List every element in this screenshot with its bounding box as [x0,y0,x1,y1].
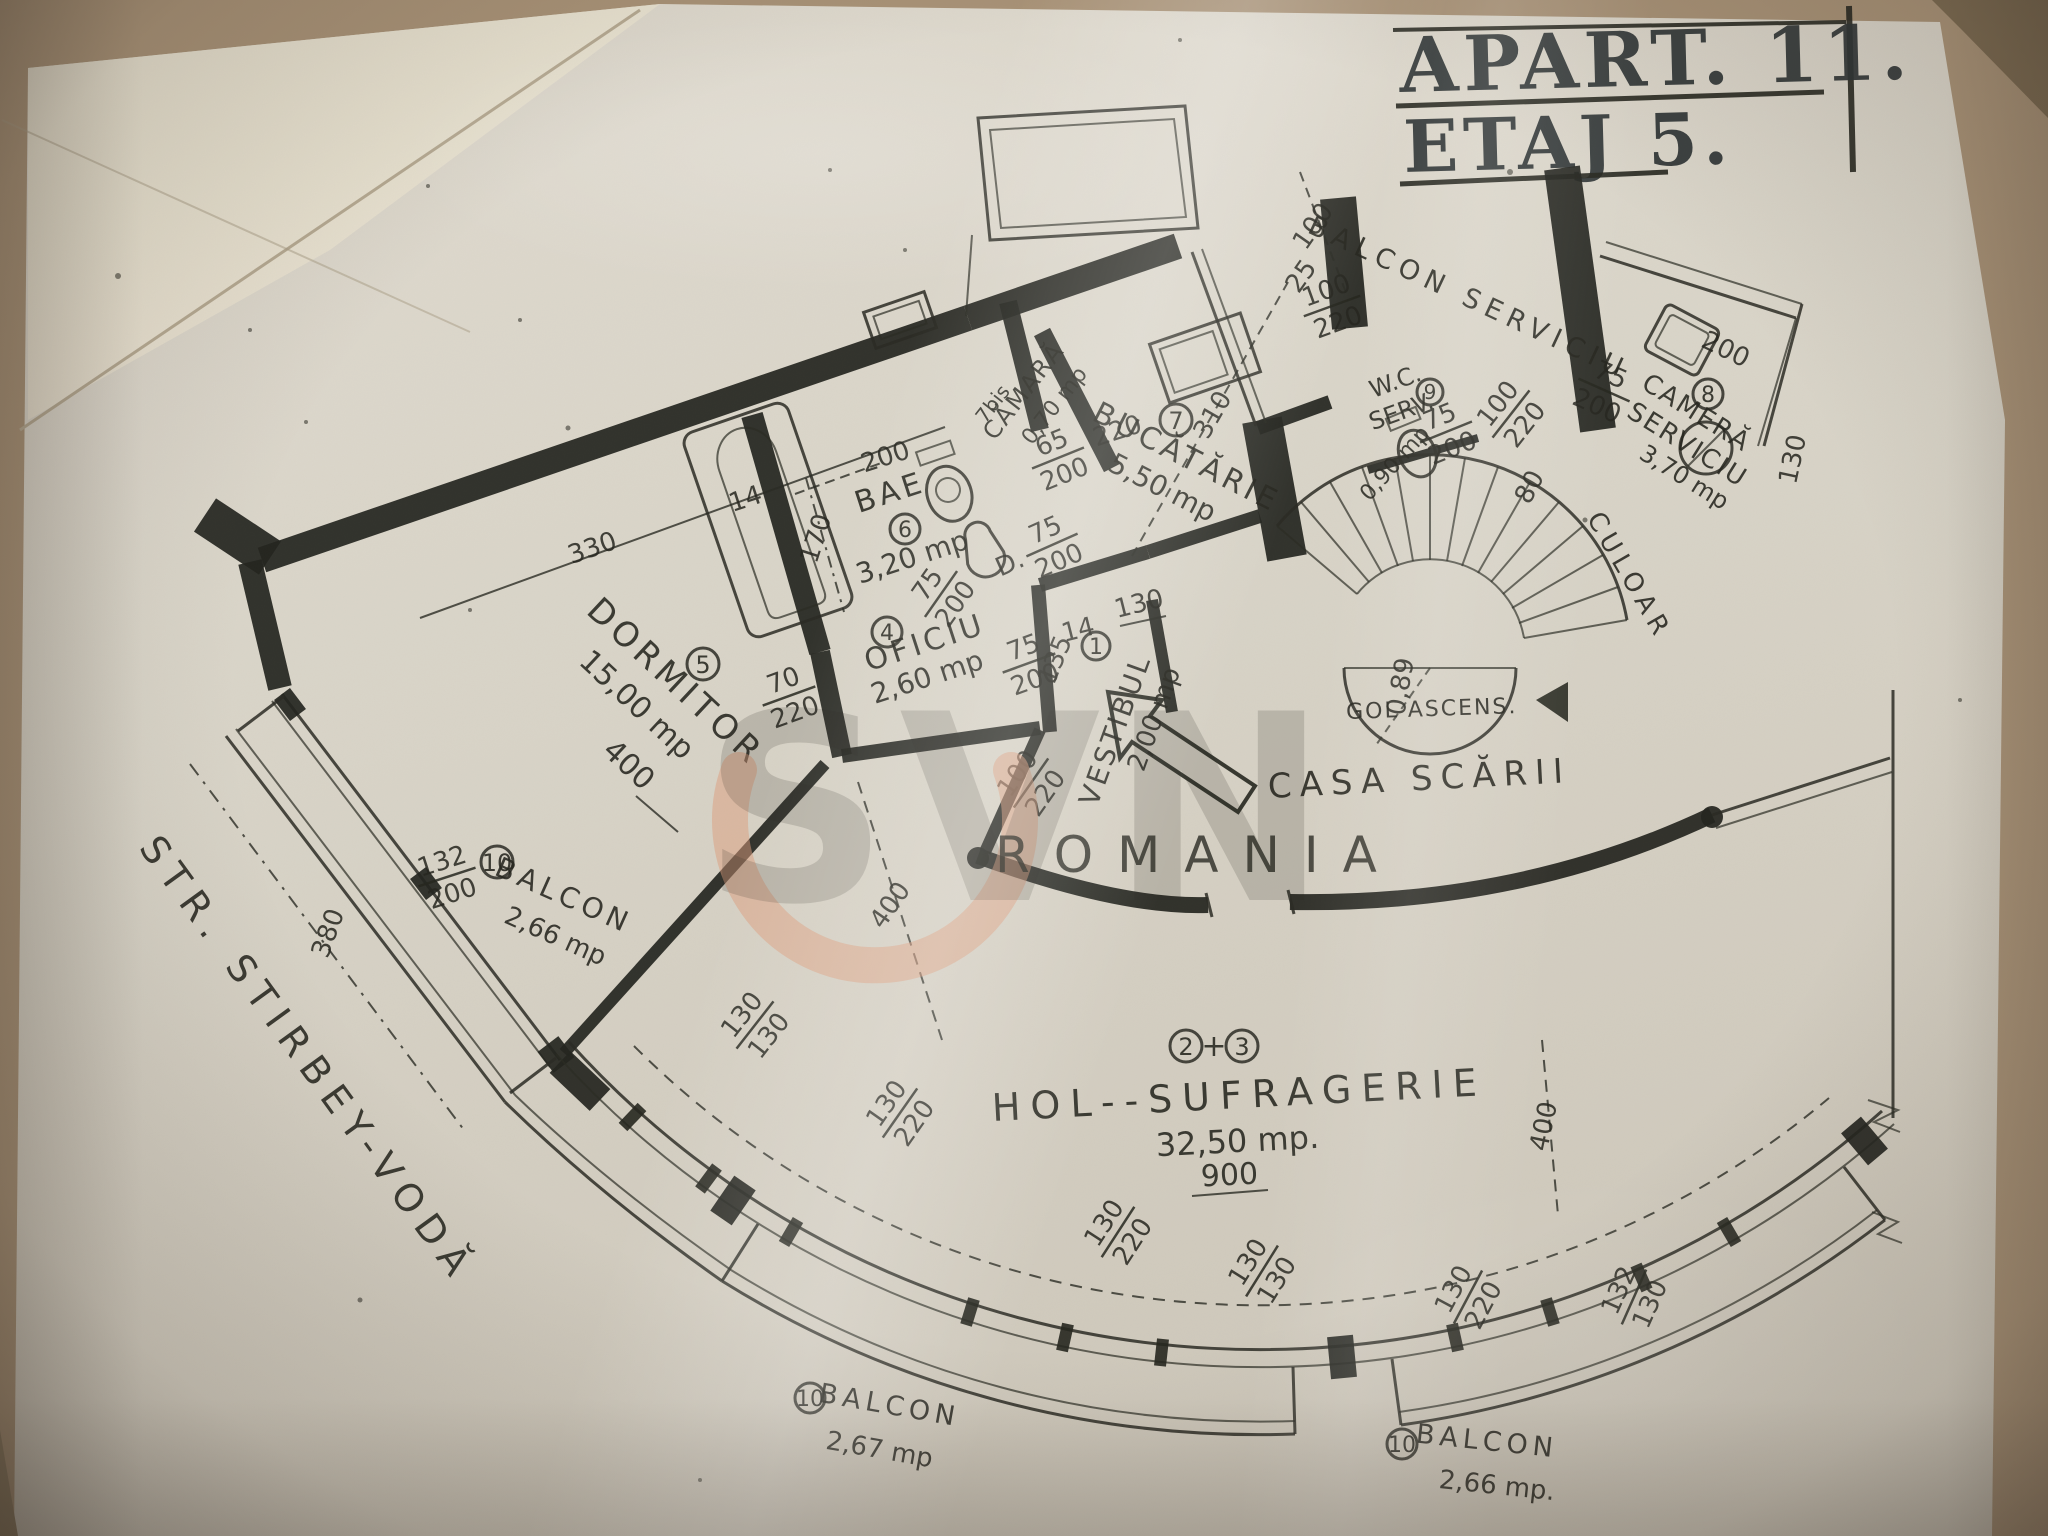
floorplan-svg: APART. 11. ETAJ 5. [0,0,2048,1536]
film-grain [0,0,2048,1536]
floorplan-photo: APART. 11. ETAJ 5. [0,0,2048,1536]
